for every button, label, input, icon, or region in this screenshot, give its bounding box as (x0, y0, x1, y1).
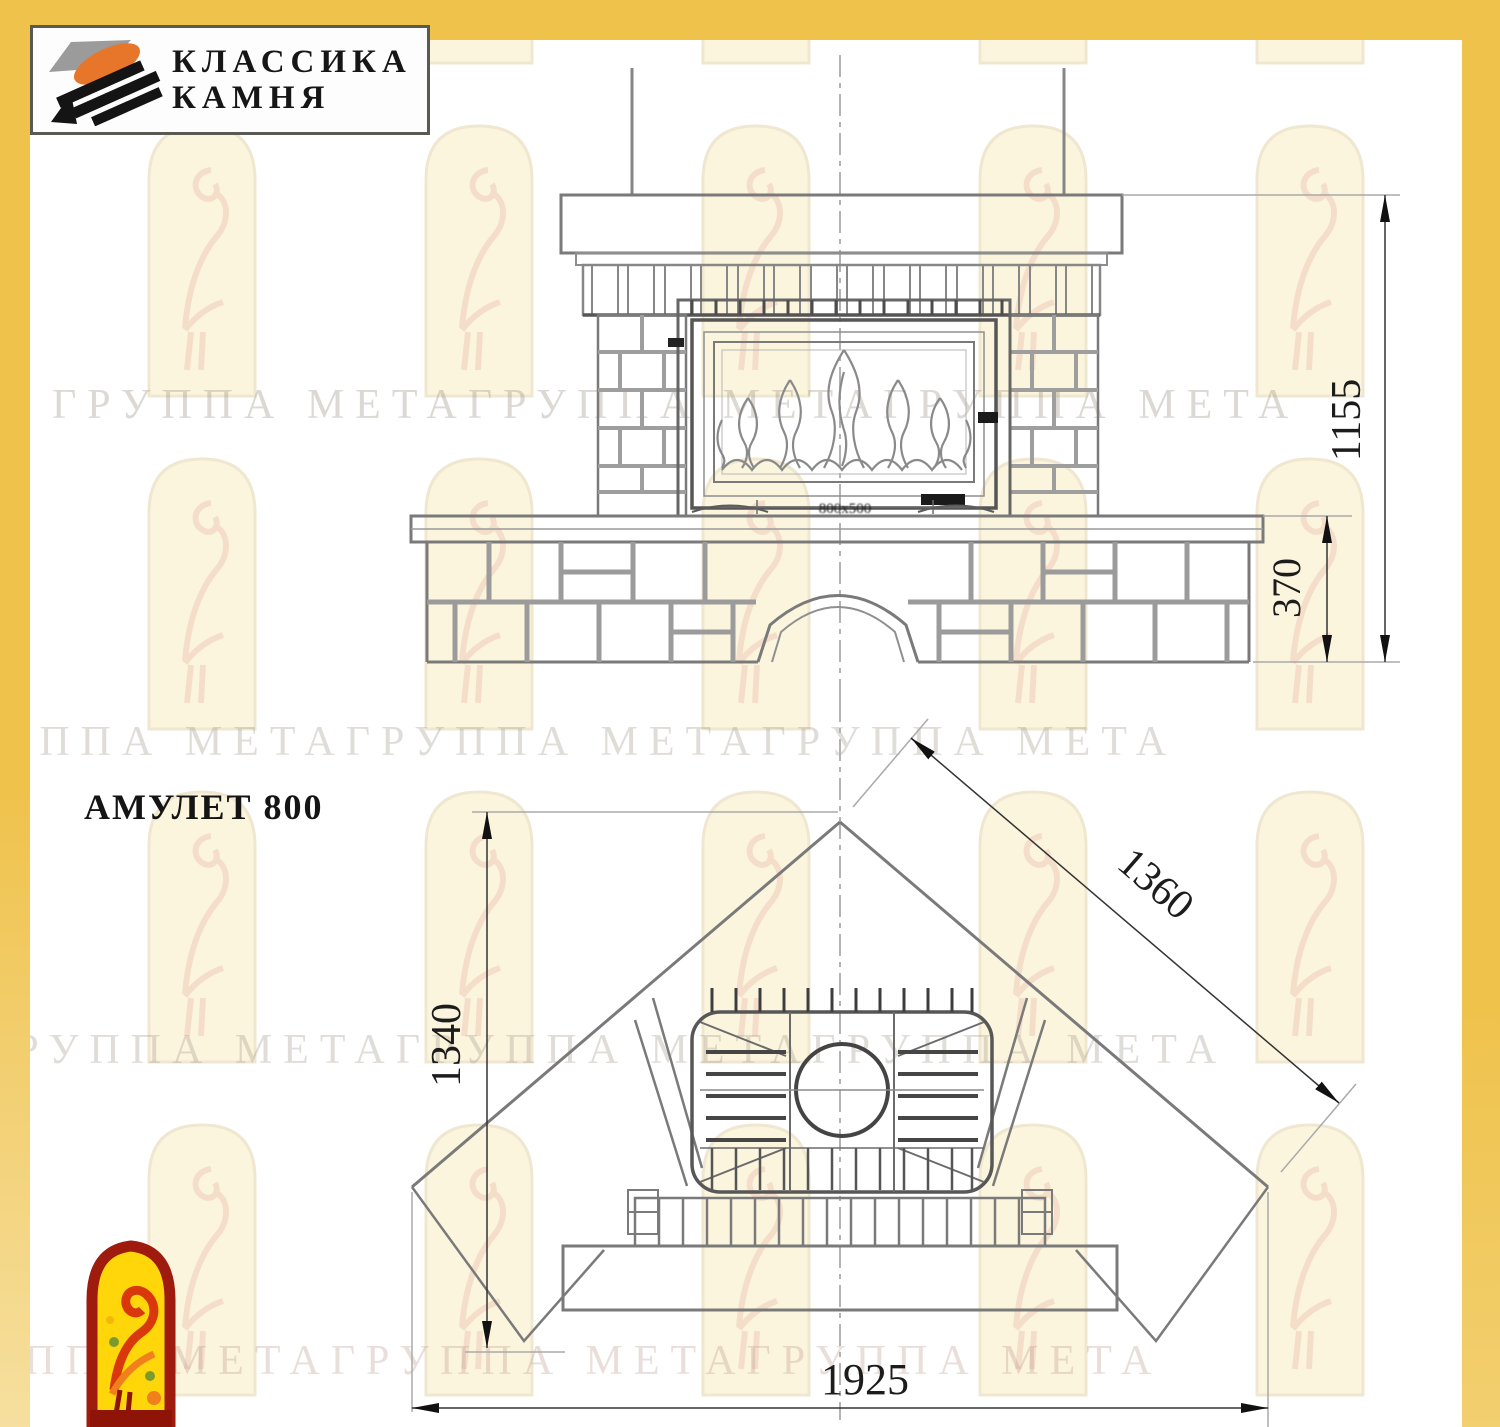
door-hinge (668, 338, 684, 347)
border-right (1462, 0, 1500, 1427)
door-handle (978, 412, 998, 423)
watermark-row-3: ГРУППА МЕТАГРУППА МЕТАГРУППА МЕТА (0, 1027, 1227, 1073)
air-vent (921, 494, 965, 505)
technical-drawing: ГРУППА МЕТАГРУППА МЕТАГРУППА МЕТА ГРУППА… (0, 0, 1500, 1427)
dim-label-1340: 1340 (424, 1003, 470, 1087)
page: ГРУППА МЕТАГРУППА МЕТАГРУППА МЕТА ГРУППА… (0, 0, 1500, 1427)
brand-name-line2: КАМНЯ (172, 80, 412, 116)
border-left (0, 0, 30, 1427)
emblem-base (90, 1410, 172, 1427)
brand-logo: КЛАССИКА КАМНЯ (30, 25, 430, 135)
dim-label-370: 370 (1264, 558, 1309, 618)
brand-name-line1: КЛАССИКА (172, 44, 412, 80)
brand-name: КЛАССИКА КАМНЯ (172, 44, 412, 116)
watermark-row-2: ГРУППА МЕТАГРУППА МЕТАГРУППА МЕТА (0, 719, 1177, 765)
stork-emblem (84, 1238, 178, 1427)
product-title: АМУЛЕТ 800 (84, 786, 324, 828)
stone-logo-icon (41, 34, 166, 126)
dim-label-1925: 1925 (821, 1355, 909, 1404)
dim-label-1155: 1155 (1324, 379, 1370, 461)
